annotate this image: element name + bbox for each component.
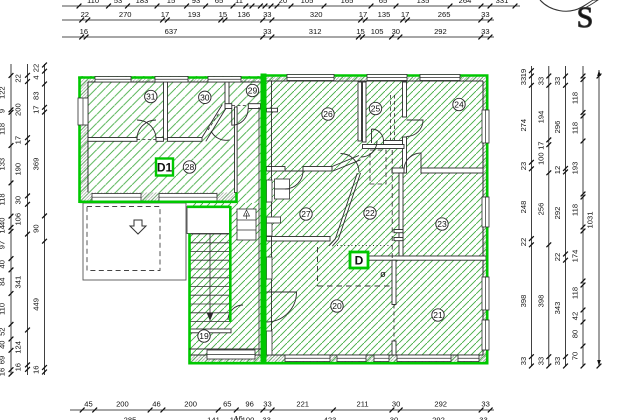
svg-text:46: 46: [152, 400, 160, 409]
svg-text:33: 33: [262, 416, 270, 420]
svg-text:24: 24: [454, 100, 464, 110]
svg-text:65: 65: [223, 400, 231, 409]
svg-text:200: 200: [14, 103, 23, 116]
svg-text:17: 17: [359, 10, 367, 19]
svg-text:33: 33: [537, 77, 546, 85]
svg-text:15: 15: [219, 10, 227, 19]
svg-text:135: 135: [417, 0, 430, 5]
svg-text:16: 16: [0, 368, 7, 376]
svg-text:29: 29: [248, 86, 258, 96]
svg-text:118: 118: [0, 123, 7, 135]
svg-text:23: 23: [519, 162, 528, 170]
svg-text:33: 33: [519, 357, 528, 365]
svg-text:16: 16: [32, 366, 41, 374]
svg-text:9: 9: [0, 109, 7, 113]
svg-text:40: 40: [0, 218, 7, 226]
svg-text:33: 33: [263, 27, 271, 36]
svg-text:D: D: [355, 254, 364, 268]
svg-text:16: 16: [234, 414, 242, 420]
svg-text:110: 110: [87, 0, 99, 5]
svg-text:31: 31: [146, 92, 156, 102]
svg-text:83: 83: [32, 92, 41, 100]
svg-text:105: 105: [371, 27, 384, 36]
svg-text:65: 65: [379, 0, 387, 5]
svg-text:12: 12: [553, 166, 562, 174]
svg-text:141: 141: [207, 416, 220, 420]
svg-text:174: 174: [571, 250, 580, 263]
svg-text:30: 30: [390, 416, 398, 420]
svg-text:398: 398: [519, 295, 528, 308]
svg-text:30: 30: [200, 92, 210, 102]
svg-text:52: 52: [0, 327, 7, 335]
svg-text:93: 93: [192, 0, 200, 5]
svg-text:40: 40: [0, 260, 7, 268]
svg-text:423: 423: [324, 416, 337, 420]
svg-text:292: 292: [553, 207, 562, 220]
svg-text:270: 270: [119, 10, 132, 19]
svg-text:292: 292: [434, 27, 447, 36]
svg-text:274: 274: [519, 119, 528, 132]
svg-text:200: 200: [116, 400, 129, 409]
svg-text:221: 221: [296, 400, 309, 409]
svg-text:27: 27: [301, 209, 311, 219]
svg-text:22: 22: [553, 253, 562, 261]
svg-text:369: 369: [32, 158, 41, 171]
svg-text:320: 320: [310, 10, 323, 19]
svg-text:110: 110: [0, 303, 7, 315]
svg-text:449: 449: [32, 298, 41, 311]
svg-text:53: 53: [114, 0, 122, 5]
svg-text:33: 33: [263, 10, 271, 19]
svg-text:90: 90: [32, 224, 41, 232]
svg-text:97: 97: [0, 241, 7, 249]
svg-text:40: 40: [0, 340, 7, 348]
svg-text:133: 133: [0, 158, 7, 171]
svg-text:17: 17: [32, 105, 41, 113]
svg-text:100: 100: [242, 416, 255, 420]
svg-text:100: 100: [537, 152, 546, 165]
svg-text:33: 33: [481, 27, 489, 36]
svg-text:194: 194: [537, 111, 546, 124]
svg-text:118: 118: [0, 193, 7, 205]
svg-text:292: 292: [434, 400, 447, 409]
svg-text:190: 190: [14, 163, 23, 176]
svg-text:17: 17: [401, 10, 409, 19]
svg-text:22: 22: [365, 208, 375, 218]
svg-text:33: 33: [519, 77, 528, 85]
svg-text:256: 256: [537, 203, 546, 216]
svg-text:16: 16: [14, 363, 23, 371]
svg-text:4: 4: [32, 75, 41, 79]
svg-text:135: 135: [378, 10, 391, 19]
svg-text:28: 28: [185, 162, 195, 172]
svg-text:84: 84: [0, 277, 7, 285]
svg-text:248: 248: [519, 201, 528, 214]
svg-text:1031: 1031: [586, 212, 595, 229]
svg-text:211: 211: [357, 400, 369, 409]
svg-text:20: 20: [332, 301, 342, 311]
svg-text:22: 22: [32, 64, 41, 72]
svg-text:42: 42: [571, 312, 580, 320]
svg-text:22: 22: [81, 10, 89, 19]
svg-text:S: S: [577, 1, 594, 34]
svg-text:15: 15: [356, 27, 364, 36]
svg-text:105: 105: [301, 0, 314, 5]
svg-text:637: 637: [165, 27, 178, 36]
svg-text:19: 19: [519, 69, 528, 77]
svg-text:17: 17: [161, 10, 169, 19]
svg-text:70: 70: [571, 352, 580, 360]
svg-text:106: 106: [14, 213, 23, 226]
svg-text:65: 65: [215, 0, 223, 5]
svg-text:23: 23: [437, 219, 447, 229]
svg-text:118: 118: [571, 204, 580, 216]
svg-text:45: 45: [84, 400, 92, 409]
svg-text:33: 33: [479, 416, 487, 420]
svg-text:33: 33: [481, 400, 489, 409]
svg-text:124: 124: [14, 341, 23, 354]
svg-text:165: 165: [341, 0, 354, 5]
svg-text:33: 33: [481, 10, 489, 19]
svg-text:296: 296: [553, 121, 562, 134]
svg-text:343: 343: [553, 302, 562, 315]
svg-text:341: 341: [14, 276, 23, 289]
svg-text:118: 118: [571, 287, 580, 299]
svg-text:22: 22: [519, 238, 528, 246]
svg-text:136: 136: [237, 10, 250, 19]
svg-text:14: 14: [0, 225, 7, 233]
svg-text:17: 17: [537, 141, 546, 149]
svg-text:19: 19: [199, 331, 209, 341]
svg-text:118: 118: [571, 122, 580, 134]
svg-text:25: 25: [371, 104, 381, 114]
svg-text:183: 183: [136, 0, 149, 5]
svg-text:30: 30: [14, 196, 23, 204]
svg-text:33: 33: [537, 357, 546, 365]
svg-text:11: 11: [235, 0, 243, 5]
svg-text:200: 200: [184, 400, 197, 409]
svg-text:69: 69: [0, 356, 7, 364]
svg-text:193: 193: [188, 10, 201, 19]
svg-text:292: 292: [432, 416, 445, 420]
svg-text:ø: ø: [380, 269, 386, 280]
svg-text:331: 331: [496, 0, 509, 5]
svg-text:264: 264: [459, 0, 472, 5]
svg-text:16: 16: [80, 27, 88, 36]
svg-text:33: 33: [553, 77, 562, 85]
svg-text:312: 312: [309, 27, 322, 36]
svg-text:30: 30: [392, 27, 400, 36]
svg-text:80: 80: [571, 330, 580, 338]
svg-text:398: 398: [537, 295, 546, 308]
svg-text:96: 96: [245, 400, 253, 409]
svg-text:30: 30: [392, 400, 400, 409]
svg-text:285: 285: [124, 416, 137, 420]
svg-text:26: 26: [323, 109, 333, 119]
svg-text:15: 15: [167, 0, 175, 5]
svg-text:193: 193: [571, 162, 580, 175]
svg-text:17: 17: [14, 136, 23, 144]
svg-text:21: 21: [433, 310, 443, 320]
svg-text:D1: D1: [157, 161, 173, 175]
svg-text:265: 265: [438, 10, 451, 19]
svg-text:118: 118: [571, 92, 580, 104]
svg-text:33: 33: [553, 357, 562, 365]
svg-text:33: 33: [263, 400, 271, 409]
svg-text:22: 22: [14, 74, 23, 82]
svg-text:20: 20: [279, 0, 287, 5]
svg-text:122: 122: [0, 86, 7, 99]
